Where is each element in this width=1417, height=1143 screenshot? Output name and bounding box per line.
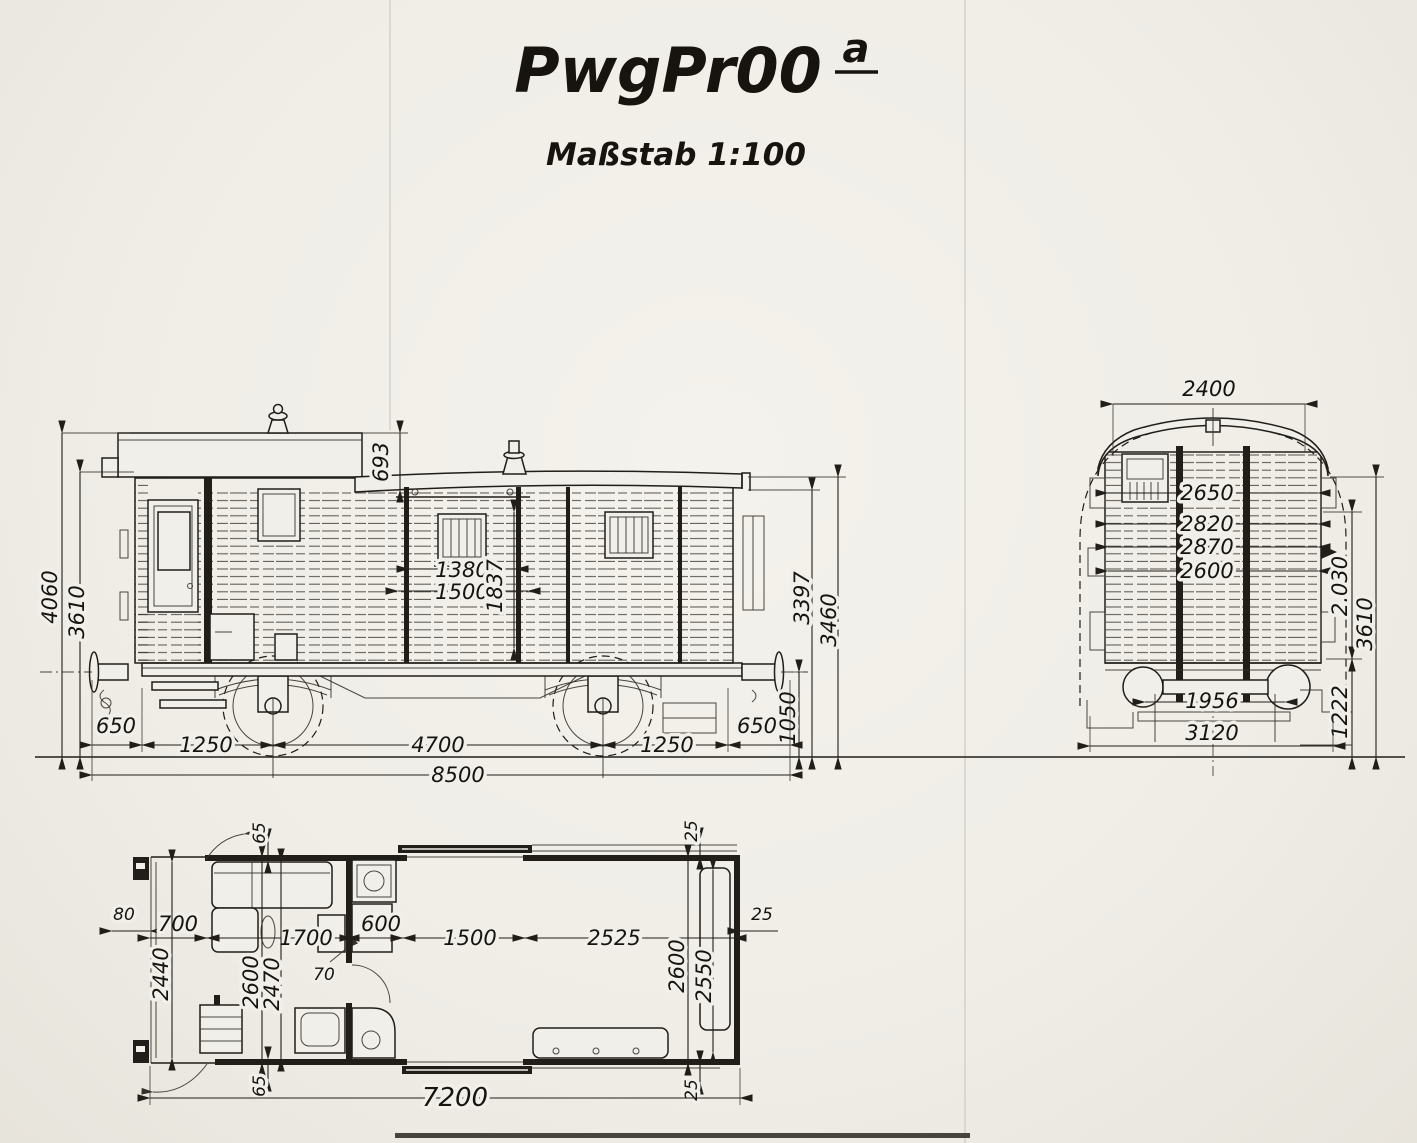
dim-total-length: 7200	[422, 1083, 488, 1113]
dim-wall-top-height: 3397	[790, 571, 814, 625]
scale-note: Maßstab 1:100	[546, 137, 806, 173]
solebar	[142, 663, 742, 676]
dim-wall-right: 25	[751, 905, 773, 925]
toilet	[295, 1008, 345, 1053]
body-window-high	[258, 489, 300, 541]
dim-buffer: 80	[113, 905, 135, 925]
roof-chimney	[503, 441, 526, 474]
side-view: 4060 3610 693 1380 1500 1837 3397 3460 1…	[38, 405, 846, 788]
dim-roof-edge-height: 3610	[65, 585, 89, 638]
dim-width-d: 2600	[1180, 559, 1233, 583]
side-bracket	[1090, 612, 1105, 650]
dim-floor-height: 1222	[1328, 685, 1352, 738]
title-block: PwgPr00 a Maßstab 1:100	[514, 26, 878, 173]
plan-sliding-door-bottom	[402, 1066, 720, 1074]
dim-wall-top-right: 25	[682, 820, 702, 842]
dim-wheel-back-gauge: 1956	[1185, 689, 1238, 713]
heater	[261, 916, 275, 948]
end-view: 2400 2650 2820 2870 2600 2.030 1222 3610…	[1080, 377, 1384, 776]
long-bench	[533, 1028, 668, 1058]
dim-right-axle: 1250	[640, 733, 693, 757]
dim-right-overhang: 650	[737, 714, 777, 738]
dim-compartment-width: 2440	[149, 947, 173, 1000]
plan-sliding-door-top	[398, 845, 737, 853]
dim-length-over-buffers: 8500	[431, 763, 484, 787]
dim-roof-top-height: 3460	[817, 593, 841, 646]
plan-right-wall	[734, 855, 740, 1065]
dim-width-c: 2870	[1180, 535, 1233, 559]
dim-door-width: 1500	[435, 580, 488, 604]
lantern-roof	[102, 405, 362, 478]
dim-wheelbase: 4700	[411, 733, 464, 757]
dim-roof-width: 2400	[1182, 377, 1235, 401]
dim-post: 70	[313, 965, 335, 985]
dim-freight-clear-width: 2550	[692, 949, 716, 1002]
lamp-iron	[120, 530, 128, 558]
dim-upper-height: 2.030	[1328, 556, 1352, 616]
dim-total-height: 4060	[38, 570, 62, 623]
dim-left-axle: 1250	[179, 733, 232, 757]
drawing-title: PwgPr00	[514, 34, 822, 107]
barred-window-right	[605, 512, 653, 558]
end-door-swing-bottom	[153, 1064, 207, 1092]
dim-clear-width: 2470	[260, 957, 284, 1010]
end-bench	[700, 868, 730, 1030]
dim-wall-bottom: 65	[250, 1075, 270, 1097]
dim-freight-length: 2525	[587, 926, 640, 950]
buffer-left	[40, 652, 128, 716]
dim-body-height: 3610	[1353, 597, 1377, 650]
table	[212, 908, 258, 952]
plan-bottom-wall	[215, 1059, 407, 1065]
end-window	[1122, 454, 1168, 502]
dim-cupboard: 600	[361, 912, 401, 936]
dim-lantern-height: 693	[369, 442, 393, 482]
dim-door-opening: 1500	[443, 926, 496, 950]
dim-width-b: 2820	[1180, 512, 1233, 536]
step-board-left	[1087, 700, 1133, 728]
step-box	[275, 634, 297, 660]
roof-lamp	[268, 405, 288, 434]
main-roof	[355, 441, 750, 492]
drawing-canvas: PwgPr00 a Maßstab 1:100	[0, 0, 1417, 1143]
lamp-iron	[120, 592, 128, 620]
partition-wall	[346, 857, 352, 963]
dim-door-clear-width: 1380	[435, 558, 488, 582]
side-bracket	[1088, 548, 1105, 576]
corner-locker	[352, 1008, 395, 1058]
scan-edge-artifact	[395, 1133, 970, 1138]
floor-plan: 80 700 1700 600 1500 2525 25 2440 2600 2…	[112, 820, 778, 1113]
side-bracket	[1321, 478, 1336, 508]
dim-door-height: 1837	[483, 559, 507, 613]
dim-width-a: 2650	[1180, 481, 1233, 505]
end-platform-right	[743, 516, 764, 610]
dim-wall-top: 65	[250, 822, 270, 844]
dim-freight-inner-width: 2600	[665, 939, 689, 992]
dim-seat-depth: 700	[158, 912, 198, 936]
partition-door-swing	[352, 965, 390, 1003]
side-bracket	[1090, 478, 1105, 508]
dim-axle-guard-width: 3120	[1185, 721, 1238, 745]
dim-compartment: 1700	[279, 926, 332, 950]
cab-door	[148, 500, 198, 612]
stove	[352, 860, 396, 902]
roof-ladder	[200, 995, 242, 1053]
cab-hatch	[210, 614, 254, 660]
dim-buffer-height: 1050	[776, 691, 800, 744]
sofa-bench	[212, 862, 332, 908]
drawing-title-superscript: a	[843, 26, 870, 72]
blueprint-page: PwgPr00 a Maßstab 1:100	[0, 0, 1417, 1143]
dim-left-overhang: 650	[96, 714, 136, 738]
